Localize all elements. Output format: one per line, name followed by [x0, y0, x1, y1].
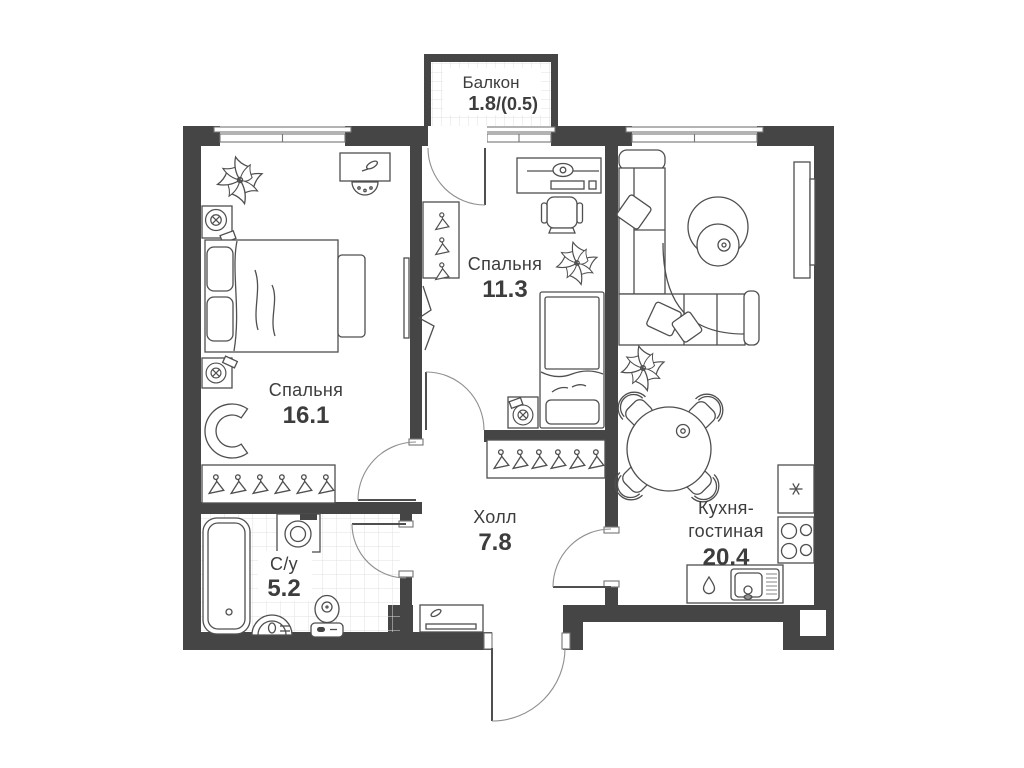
sofa-armrest: [744, 291, 759, 345]
desk-chair: [352, 182, 378, 195]
hall-wardrobe: [487, 440, 605, 478]
office-chair: [542, 197, 583, 233]
floor-plan-page: Балкон 1.8 /(0.5) Спальня 16.1 Спальня 1…: [0, 0, 1024, 768]
washing-machine: [277, 514, 320, 552]
desk: [517, 158, 601, 193]
bathtub: [203, 518, 250, 634]
hall-area: 7.8: [478, 529, 511, 556]
nightstand-bottom: [202, 356, 237, 388]
dining-table: [627, 407, 711, 491]
mirror: [404, 258, 409, 338]
windows: [214, 126, 763, 146]
sofa-armrest: [619, 150, 665, 170]
pillow: [207, 247, 233, 291]
kitchen-living-name-line2: гостиная: [688, 521, 764, 541]
tv: [810, 179, 815, 265]
stove: [778, 517, 814, 563]
bedroom-large-door: [358, 442, 416, 500]
single-bed: [540, 292, 604, 428]
round-armchair: [688, 197, 748, 266]
desk: [340, 153, 390, 181]
plant-icon: [217, 157, 262, 204]
balcony-area: 1.8: [468, 93, 496, 115]
balcony-coeff: /(0.5): [496, 94, 538, 114]
bedroom-large-furniture: [202, 153, 409, 503]
balcony-door: [428, 148, 485, 205]
nightstand: [508, 397, 538, 428]
wardrobe: [202, 465, 335, 503]
floor-plan: Балкон 1.8 /(0.5) Спальня 16.1 Спальня 1…: [0, 0, 1024, 768]
bed-bench: [338, 255, 365, 337]
shaft-niche: [800, 610, 826, 636]
balcony-name: Балкон: [462, 73, 519, 92]
kitchen-door: [553, 529, 611, 587]
bedroom-large-area: 16.1: [283, 402, 330, 429]
nightstand-top: [202, 206, 236, 243]
pillow: [207, 297, 233, 341]
dining-set: [609, 386, 730, 509]
bedroom-large-name: Спальня: [269, 380, 343, 400]
double-bed: [205, 240, 365, 352]
wall: [551, 54, 558, 126]
kitchen-living-area: 20.4: [703, 544, 750, 571]
keyboard: [551, 181, 584, 189]
hall-furniture: [420, 440, 605, 632]
window-bedroom-small: [483, 126, 555, 146]
wall: [424, 54, 431, 126]
kitchen-living-name-line1: Кухня-: [698, 498, 754, 518]
plant-icon: [622, 346, 664, 390]
bedroom-small-door: [426, 372, 484, 430]
bathroom-area: 5.2: [267, 575, 300, 602]
entrance-door: [492, 648, 565, 721]
shoe-cabinet: [420, 605, 483, 632]
bedroom-small-area: 11.3: [482, 276, 527, 303]
plant-icon: [557, 242, 597, 284]
tv-console: [794, 162, 810, 278]
wall: [424, 54, 558, 62]
armchair: [205, 404, 248, 458]
balcony-door-opening: [428, 126, 487, 146]
fridge: [778, 465, 814, 513]
bathroom-name: С/у: [270, 554, 298, 574]
wardrobe: [423, 202, 459, 280]
bed-bench: [546, 400, 599, 424]
window-bedroom-large: [214, 126, 351, 146]
bedroom-small-name: Спальня: [468, 254, 542, 274]
window-kitchen-living: [626, 126, 763, 146]
hall-name: Холл: [473, 507, 517, 527]
